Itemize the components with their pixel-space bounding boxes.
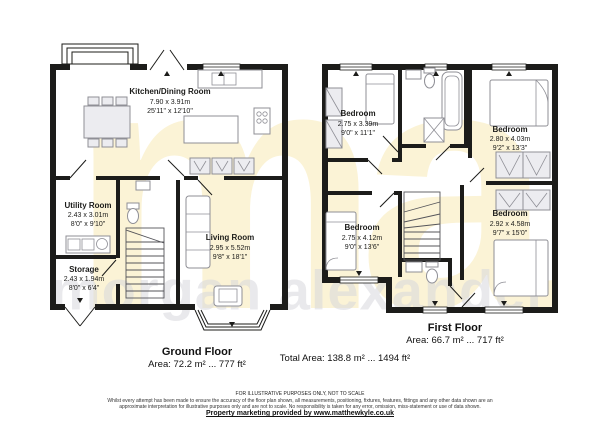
- kitchen-island-symbol: [184, 116, 238, 143]
- room-dims-imperial: 9'0" x 11'1": [341, 130, 375, 137]
- room-dims-metric: 2.75 x 3.39m: [338, 121, 379, 128]
- stove-symbol: [254, 108, 270, 134]
- ground-floor-plan: Kitchen/Dining Room 7.90 x 3.91m 25'11" …: [50, 44, 288, 330]
- ground-floor-windows: [203, 64, 240, 70]
- bathroom-toilet-symbol: [424, 68, 435, 88]
- cloakroom-toilet-symbol: [127, 203, 139, 224]
- utility-sink-symbol: [66, 236, 110, 253]
- room-dims-metric: 2.75 x 4.12m: [342, 235, 383, 242]
- room-dims-imperial: 9'8" x 18'1": [213, 254, 248, 261]
- wc-sink-symbol: [406, 262, 422, 272]
- room-name: Storage: [69, 265, 99, 274]
- room-name: Bedroom: [492, 209, 527, 218]
- room-dims-metric: 2.92 x 4.58m: [490, 221, 531, 228]
- room-dims-imperial: 8'0" x 9'10": [71, 221, 106, 228]
- first-floor-plan: Bedroom 2.75 x 3.39m 9'0" x 11'1" Bedroo…: [322, 64, 558, 313]
- wardrobe-symbol-top-left: [326, 88, 342, 148]
- sofa-symbol: [186, 196, 210, 268]
- kitchen-counter-sink-symbol: [198, 70, 262, 88]
- bathroom-sink-symbol: [406, 70, 421, 79]
- dining-table-symbol: [84, 97, 130, 147]
- room-name: Bedroom: [492, 125, 527, 134]
- kitchen-dining-room-label: Kitchen/Dining Room 7.90 x 3.91m 25'11" …: [129, 87, 210, 115]
- room-dims-metric: 2.43 x 1.94m: [64, 276, 105, 283]
- room-dims-metric: 2.80 x 4.03m: [490, 136, 531, 143]
- wc-toilet-symbol: [426, 262, 438, 283]
- room-dims-imperial: 25'11" x 12'10": [147, 108, 193, 115]
- utility-room-label: Utility Room 2.43 x 3.01m 8'0" x 9'10": [64, 201, 111, 228]
- storage-label: Storage 2.43 x 1.94m 8'0" x 6'4": [64, 265, 105, 292]
- room-name: Utility Room: [64, 201, 111, 210]
- illustrative-notice: FOR ILLUSTRATIVE PURPOSES ONLY, NOT TO S…: [0, 391, 600, 397]
- room-name: Living Room: [206, 233, 254, 242]
- cloakroom-sink-symbol: [136, 181, 150, 190]
- armchair-symbol: [214, 286, 242, 306]
- bedroom-top-right-label: Bedroom 2.80 x 4.03m 9'2" x 13'3": [490, 125, 531, 152]
- bed-symbol-bottom-right: [494, 240, 548, 296]
- bay-window-living-room: [195, 310, 270, 330]
- room-dims-imperial: 9'2" x 13'3": [493, 145, 528, 152]
- marketing-link[interactable]: Property marketing provided by www.matth…: [0, 410, 600, 417]
- floorplan-image: ma morgan alexander: [0, 0, 600, 436]
- staircase-ground: [126, 228, 164, 298]
- room-name: Bedroom: [340, 109, 375, 118]
- room-dims-metric: 2.95 x 5.52m: [210, 245, 251, 252]
- bathtub-symbol: [442, 72, 462, 130]
- bedroom-bottom-right-label: Bedroom 2.92 x 4.58m 9'7" x 15'0": [490, 209, 531, 237]
- room-dims-imperial: 9'0" x 13'6": [345, 244, 380, 251]
- bed-symbol-top-right: [490, 80, 548, 126]
- bedroom-top-left-label: Bedroom 2.75 x 3.39m 9'0" x 11'1": [338, 109, 379, 137]
- kitchen-chairs-symbol: [190, 158, 254, 174]
- staircase-first: [404, 192, 440, 260]
- room-dims-imperial: 9'7" x 15'0": [493, 230, 528, 237]
- airing-cupboard-symbol: [424, 118, 444, 142]
- room-name: Bedroom: [344, 223, 379, 232]
- first-floor-title: First Floor: [355, 322, 555, 334]
- first-floor-area: Area: 66.7 m² ... 717 ft²: [355, 335, 555, 346]
- bay-window-top: [62, 44, 138, 64]
- wardrobe-symbol-right-top: [496, 152, 550, 178]
- first-floor-caption: First Floor Area: 66.7 m² ... 717 ft²: [355, 322, 555, 346]
- room-name: Kitchen/Dining Room: [129, 87, 210, 96]
- total-area-caption: Total Area: 138.8 m² ... 1494 ft²: [250, 353, 440, 364]
- bedroom-bottom-left-label: Bedroom 2.75 x 4.12m 9'0" x 13'6": [342, 223, 383, 251]
- room-dims-metric: 7.90 x 3.91m: [150, 99, 191, 106]
- room-dims-metric: 2.43 x 3.01m: [68, 212, 109, 219]
- living-room-label: Living Room 2.95 x 5.52m 9'8" x 18'1": [206, 233, 254, 261]
- wardrobe-symbol-right-bottom: [496, 190, 550, 210]
- room-dims-imperial: 8'0" x 6'4": [69, 285, 100, 292]
